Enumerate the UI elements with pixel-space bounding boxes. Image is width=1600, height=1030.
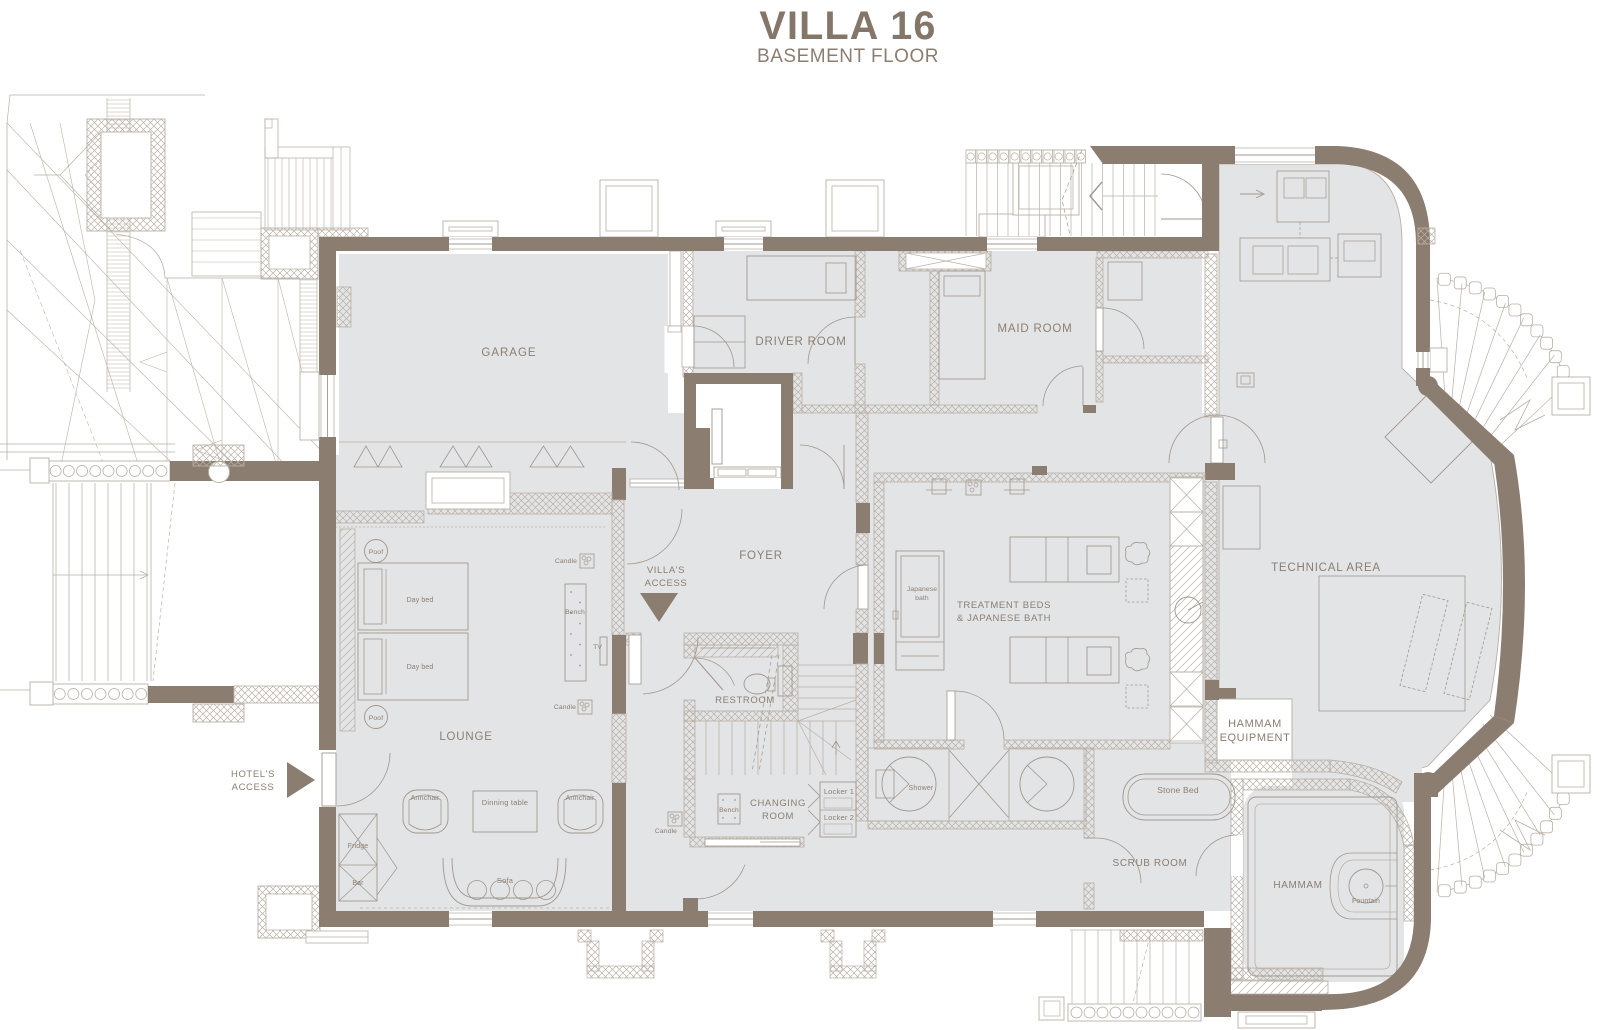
svg-text:Poof: Poof: [369, 715, 383, 722]
svg-text:HOTEL'S: HOTEL'S: [231, 769, 275, 780]
svg-text:Sofa: Sofa: [497, 876, 514, 885]
svg-text:Japanese: Japanese: [907, 586, 937, 593]
svg-text:TV: TV: [593, 644, 602, 651]
svg-text:Candle: Candle: [655, 828, 677, 835]
svg-text:Dinning table: Dinning table: [482, 798, 528, 807]
svg-text:Stone Bed: Stone Bed: [1157, 785, 1199, 795]
svg-text:FOYER: FOYER: [739, 550, 783, 562]
svg-text:LOUNGE: LOUNGE: [439, 731, 492, 743]
svg-text:Day bed: Day bed: [407, 664, 434, 671]
svg-text:ACCESS: ACCESS: [232, 782, 275, 793]
svg-text:GARAGE: GARAGE: [481, 347, 536, 359]
svg-text:RESTROOM: RESTROOM: [715, 695, 775, 706]
svg-text:VILLA'S: VILLA'S: [647, 565, 685, 576]
svg-text:CHANGING: CHANGING: [750, 798, 806, 809]
svg-text:Fridge: Fridge: [348, 843, 368, 850]
svg-text:Candle: Candle: [554, 704, 576, 711]
svg-text:SCRUB ROOM: SCRUB ROOM: [1113, 858, 1188, 869]
svg-text:MAID ROOM: MAID ROOM: [998, 323, 1073, 335]
svg-text:Bar: Bar: [352, 880, 364, 887]
svg-text:TREATMENT BEDS: TREATMENT BEDS: [957, 600, 1051, 611]
svg-text:VILLA 16: VILLA 16: [759, 4, 936, 48]
svg-text:Bench: Bench: [565, 609, 585, 616]
svg-text:Fountain: Fountain: [1352, 898, 1380, 905]
svg-text:TECHNICAL AREA: TECHNICAL AREA: [1271, 562, 1381, 574]
svg-text:Bench: Bench: [719, 807, 739, 814]
svg-text:Shower: Shower: [909, 785, 934, 792]
svg-text:Armchair: Armchair: [566, 795, 595, 802]
svg-text:bath: bath: [915, 595, 929, 602]
svg-text:ACCESS: ACCESS: [645, 578, 688, 589]
svg-text:Poof: Poof: [369, 549, 383, 556]
svg-text:HAMMAM: HAMMAM: [1273, 880, 1322, 891]
svg-text:DRIVER ROOM: DRIVER ROOM: [755, 336, 846, 348]
svg-text:Armchair: Armchair: [411, 795, 440, 802]
svg-text:Locker 1: Locker 1: [824, 787, 854, 796]
svg-text:Locker 2: Locker 2: [824, 813, 854, 822]
svg-text:BASEMENT FLOOR: BASEMENT FLOOR: [757, 46, 939, 67]
svg-text:& JAPANESE BATH: & JAPANESE BATH: [957, 613, 1051, 624]
svg-text:HAMMAM: HAMMAM: [1228, 718, 1282, 730]
svg-text:Day bed: Day bed: [407, 597, 434, 604]
svg-text:Candle: Candle: [555, 558, 577, 565]
svg-text:EQUIPMENT: EQUIPMENT: [1220, 732, 1291, 744]
svg-text:ROOM: ROOM: [762, 811, 794, 822]
